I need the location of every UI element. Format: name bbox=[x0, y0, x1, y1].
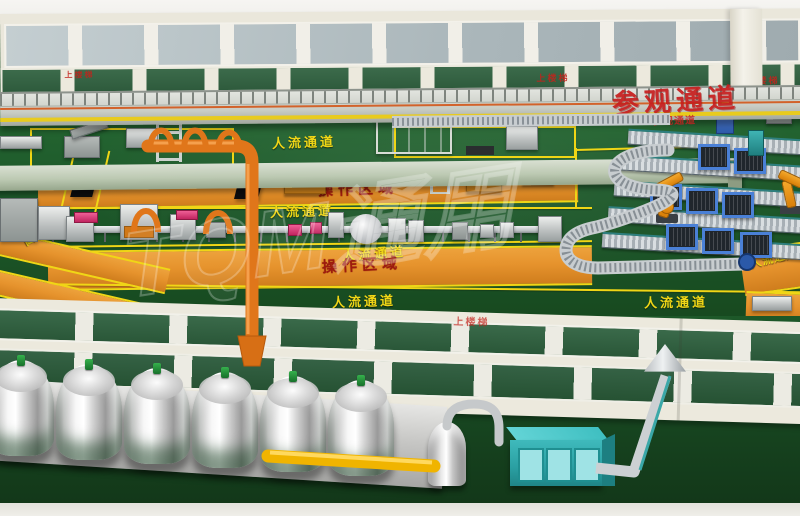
conveyor-drive-unit bbox=[739, 254, 755, 270]
serpentine-conveyor-rollers bbox=[566, 150, 744, 268]
exhaust-chimney-accent bbox=[640, 376, 670, 470]
factory-3d-overview: 上楼梯 上楼梯 上楼梯 操作区域 人流通道 操作区域 人流通道 人流通道 人流通… bbox=[0, 0, 800, 516]
cyclone-outlet-pipe bbox=[447, 404, 499, 442]
orange-pipe-funnel bbox=[238, 336, 266, 366]
